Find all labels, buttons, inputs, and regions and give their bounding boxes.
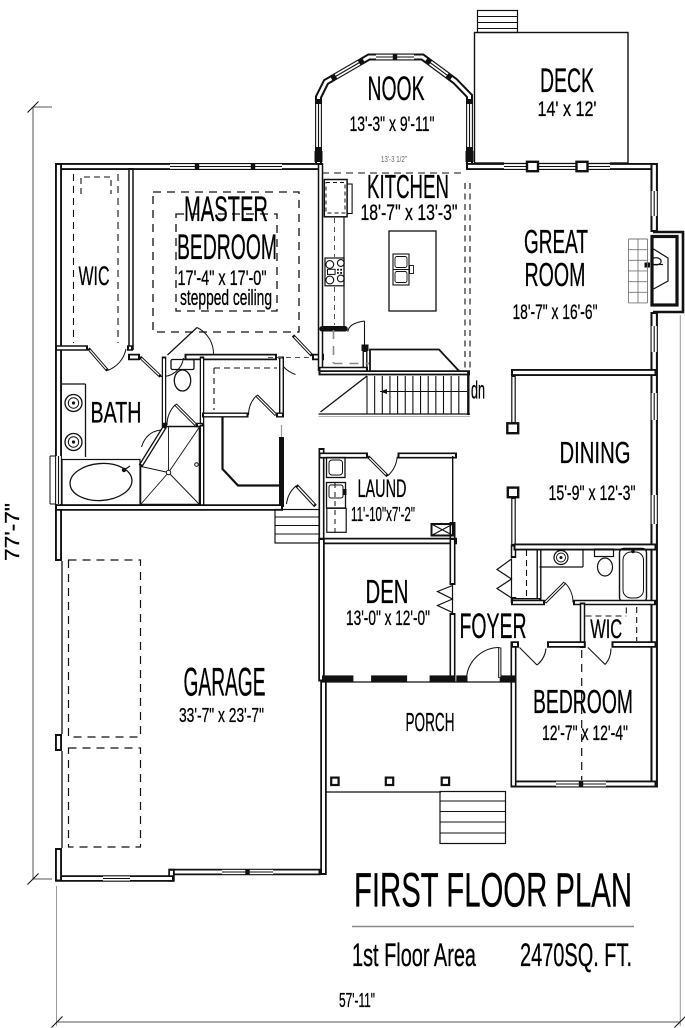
svg-text:dn: dn xyxy=(471,377,485,405)
svg-text:WIC: WIC xyxy=(79,261,110,291)
svg-text:LAUND: LAUND xyxy=(358,475,407,503)
svg-text:MASTER: MASTER xyxy=(184,190,268,229)
svg-text:11'-10"x7'-2": 11'-10"x7'-2" xyxy=(351,504,415,526)
svg-text:FOYER: FOYER xyxy=(460,607,527,646)
svg-text:BEDROOM: BEDROOM xyxy=(533,683,633,720)
svg-text:BATH: BATH xyxy=(91,397,142,430)
svg-text:18'-7" x 16'-6": 18'-7" x 16'-6" xyxy=(513,301,598,324)
svg-text:WIC: WIC xyxy=(590,614,622,644)
svg-text:DEN: DEN xyxy=(366,573,409,610)
svg-text:FIRST FLOOR PLAN: FIRST FLOOR PLAN xyxy=(354,865,632,918)
svg-text:PORCH: PORCH xyxy=(406,709,455,737)
svg-text:13'-3 1/2": 13'-3 1/2" xyxy=(381,155,407,164)
svg-text:57'-11": 57'-11" xyxy=(339,990,375,1012)
svg-text:15'-9" x 12'-3": 15'-9" x 12'-3" xyxy=(549,482,636,505)
svg-text:ROOM: ROOM xyxy=(525,256,586,293)
svg-text:stepped ceiling: stepped ceiling xyxy=(180,285,272,310)
svg-text:14' x 12': 14' x 12' xyxy=(538,98,597,121)
svg-text:2470SQ. FT.: 2470SQ. FT. xyxy=(520,937,632,973)
svg-text:13'-0" x 12'-0": 13'-0" x 12'-0" xyxy=(346,607,430,630)
svg-text:NOOK: NOOK xyxy=(368,70,425,108)
svg-text:BEDROOM: BEDROOM xyxy=(177,228,277,267)
svg-text:DINING: DINING xyxy=(560,435,631,470)
svg-text:77'-7": 77'-7" xyxy=(2,503,24,561)
svg-text:13'-3" x 9'-11": 13'-3" x 9'-11" xyxy=(350,112,435,136)
svg-text:12'-7" x 12'-4": 12'-7" x 12'-4" xyxy=(542,722,628,745)
svg-text:DECK: DECK xyxy=(540,62,594,100)
svg-text:1st Floor Area: 1st Floor Area xyxy=(352,937,476,973)
svg-text:18'-7" x 13'-3": 18'-7" x 13'-3" xyxy=(361,200,458,225)
svg-text:GARAGE: GARAGE xyxy=(184,661,266,705)
svg-text:33'-7" x 23'-7": 33'-7" x 23'-7" xyxy=(179,705,264,727)
svg-text:GREAT: GREAT xyxy=(524,223,588,260)
